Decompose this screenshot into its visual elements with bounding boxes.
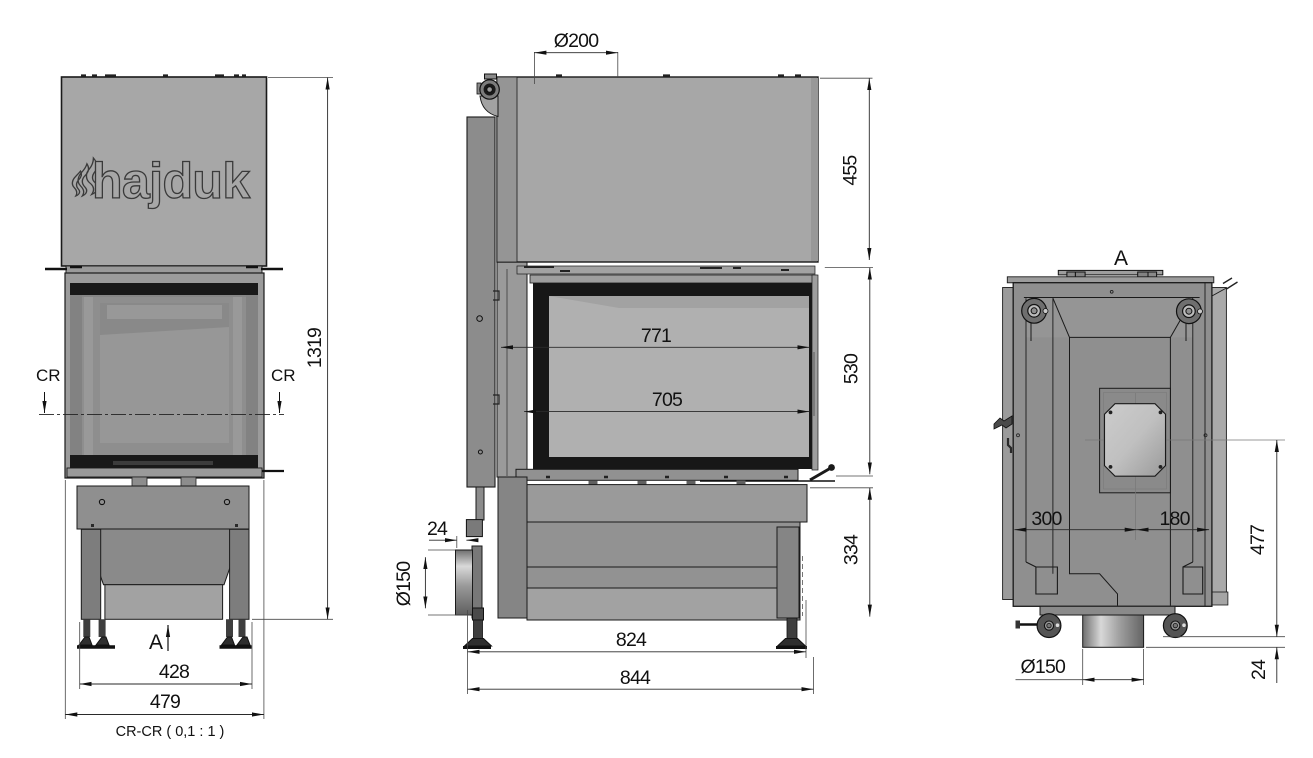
svg-text:477: 477 bbox=[1247, 525, 1269, 555]
svg-text:hajduk: hajduk bbox=[92, 153, 250, 209]
svg-text:A: A bbox=[1114, 247, 1128, 270]
svg-text:428: 428 bbox=[159, 661, 189, 683]
svg-text:CR: CR bbox=[36, 366, 61, 385]
svg-text:24: 24 bbox=[1248, 659, 1270, 680]
svg-text:CR-CR ( 0,1 : 1 ): CR-CR ( 0,1 : 1 ) bbox=[116, 724, 225, 740]
svg-text:300: 300 bbox=[1031, 508, 1062, 530]
svg-text:455: 455 bbox=[840, 155, 862, 186]
svg-text:Ø200: Ø200 bbox=[554, 30, 599, 52]
svg-text:24: 24 bbox=[427, 518, 448, 540]
svg-text:479: 479 bbox=[150, 691, 180, 713]
svg-text:A: A bbox=[149, 631, 163, 654]
svg-text:844: 844 bbox=[620, 667, 651, 689]
svg-text:Ø150: Ø150 bbox=[393, 561, 415, 606]
svg-text:530: 530 bbox=[841, 353, 863, 384]
svg-text:771: 771 bbox=[641, 325, 671, 347]
svg-text:1319: 1319 bbox=[304, 328, 326, 368]
svg-text:334: 334 bbox=[841, 534, 863, 565]
svg-text:824: 824 bbox=[616, 629, 647, 651]
svg-text:Ø150: Ø150 bbox=[1021, 656, 1066, 678]
svg-text:705: 705 bbox=[652, 389, 683, 411]
svg-text:180: 180 bbox=[1160, 508, 1191, 530]
svg-text:CR: CR bbox=[271, 366, 296, 385]
